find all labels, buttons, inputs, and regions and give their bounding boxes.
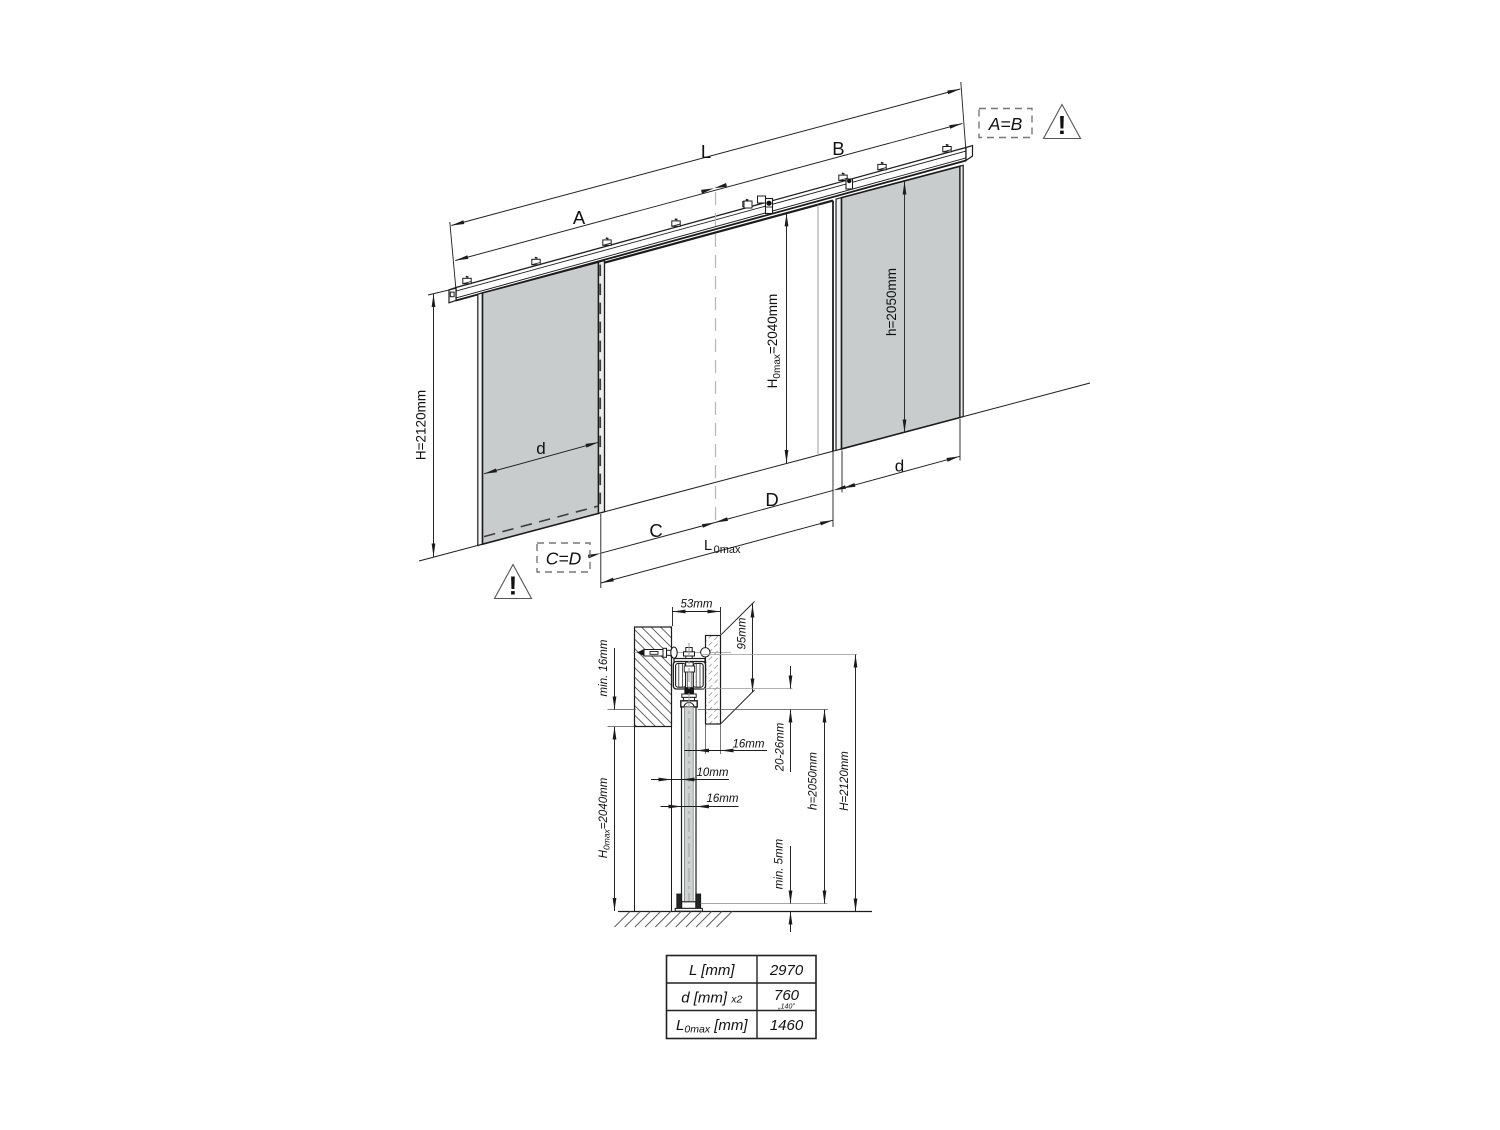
svg-text:H=2120mm: H=2120mm <box>839 751 851 811</box>
svg-text:1460: 1460 <box>770 1017 804 1034</box>
svg-text:53mm: 53mm <box>681 599 713 611</box>
svg-text:H=2120mm: H=2120mm <box>414 390 429 460</box>
svg-text:L: L <box>701 141 711 162</box>
svg-text:16mm: 16mm <box>733 739 765 751</box>
svg-text:h=2050mm: h=2050mm <box>808 752 820 810</box>
svg-text:760: 760 <box>774 987 800 1004</box>
svg-text:16mm: 16mm <box>707 793 739 805</box>
svg-text:L [mm]: L [mm] <box>689 962 735 979</box>
svg-text:d: d <box>536 439 545 458</box>
svg-text:D: D <box>765 489 778 510</box>
svg-text:d: d <box>895 457 904 476</box>
svg-text:!: ! <box>1058 110 1067 140</box>
svg-text:min. 5mm: min. 5mm <box>774 838 786 889</box>
svg-text:10mm: 10mm <box>697 767 729 779</box>
svg-text:min. 16mm: min. 16mm <box>598 639 610 696</box>
svg-text:C=D: C=D <box>546 549 582 569</box>
svg-text:C: C <box>649 520 662 541</box>
svg-text:95mm: 95mm <box>737 617 749 649</box>
svg-text:A=B: A=B <box>988 114 1023 134</box>
svg-text:!: ! <box>509 571 518 601</box>
svg-text:20-26mm: 20-26mm <box>775 722 787 772</box>
svg-text:B: B <box>832 138 844 159</box>
svg-text:h=2050mm: h=2050mm <box>884 268 899 336</box>
svg-text:„140”: „140” <box>777 1004 795 1011</box>
svg-text:2970: 2970 <box>769 962 804 979</box>
svg-text:A: A <box>573 207 586 228</box>
